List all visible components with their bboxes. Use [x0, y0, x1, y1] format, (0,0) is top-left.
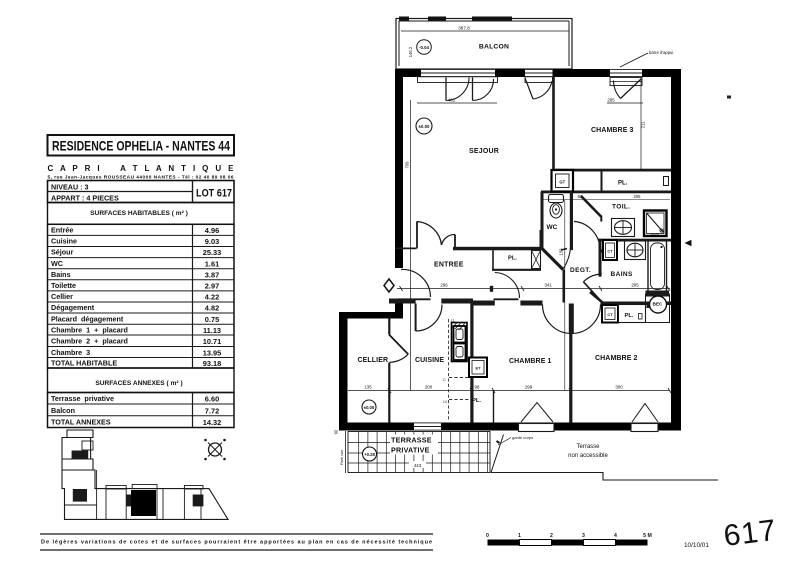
svg-text:Toilette: Toilette — [51, 281, 76, 290]
svg-text:Cuisine: Cuisine — [51, 237, 77, 246]
svg-text:Cellier: Cellier — [51, 292, 73, 301]
svg-text:CHAMBRE 3: CHAMBRE 3 — [591, 127, 634, 134]
svg-text:1.61: 1.61 — [205, 259, 219, 268]
svg-text:0.75: 0.75 — [205, 315, 219, 324]
svg-text:9.03: 9.03 — [205, 237, 219, 246]
svg-text:90: 90 — [334, 429, 339, 434]
svg-text:CUISINE: CUISINE — [415, 357, 444, 364]
svg-text:PL.: PL. — [625, 313, 634, 319]
svg-text:93.18: 93.18 — [203, 359, 222, 368]
svg-text:Chambre 2 + placard: Chambre 2 + placard — [51, 337, 128, 346]
svg-text:709: 709 — [405, 161, 410, 169]
svg-text:3.87: 3.87 — [205, 270, 219, 279]
svg-text:83: 83 — [578, 194, 583, 199]
svg-text:PL.: PL. — [618, 181, 628, 187]
svg-text:135: 135 — [364, 385, 372, 390]
svg-text:LOT 617: LOT 617 — [196, 188, 232, 200]
svg-text:4.82: 4.82 — [205, 304, 219, 313]
svg-text:PL.: PL. — [508, 256, 517, 262]
svg-text:RESIDENCE OPHELIA - NANTES 44: RESIDENCE OPHELIA - NANTES 44 — [52, 139, 230, 154]
svg-text:WC: WC — [51, 259, 63, 268]
svg-text:Terrasse privative: Terrasse privative — [51, 394, 114, 403]
svg-text:5 M: 5 M — [643, 533, 652, 539]
svg-text:ET: ET — [475, 366, 481, 371]
svg-text:3: 3 — [582, 533, 585, 539]
svg-text:BALCON: BALCON — [479, 44, 509, 51]
svg-text:±0.00: ±0.00 — [364, 405, 375, 410]
svg-text:TOTAL ANNEXES: TOTAL ANNEXES — [51, 418, 111, 427]
svg-text:CHAMBRE 2: CHAMBRE 2 — [595, 355, 638, 362]
svg-text:14.32: 14.32 — [203, 418, 222, 427]
svg-text:10/10/01: 10/10/01 — [684, 542, 709, 549]
svg-text:douche: douche — [651, 232, 660, 236]
svg-text:DEGT.: DEGT. — [570, 267, 591, 274]
svg-text:±0.00: ±0.00 — [419, 124, 431, 129]
svg-text:ENTREE: ENTREE — [434, 262, 464, 269]
svg-text:205: 205 — [634, 194, 642, 199]
svg-text:10.71: 10.71 — [203, 337, 222, 346]
svg-text:200: 200 — [425, 385, 433, 390]
svg-text:LV: LV — [443, 400, 448, 404]
svg-text:Bains: Bains — [51, 270, 71, 279]
svg-text:C A P R I A T L A N T I Q U: C A P R I A T L A N T I Q U E — [48, 164, 235, 173]
svg-text:1: 1 — [518, 533, 521, 539]
svg-text:CELLIER: CELLIER — [358, 357, 389, 364]
svg-text:7.72: 7.72 — [205, 406, 219, 415]
svg-text:4.22: 4.22 — [205, 293, 219, 302]
svg-text:CT: CT — [607, 312, 613, 317]
svg-text:617: 617 — [722, 514, 779, 553]
svg-text:Pare vue: Pare vue — [340, 450, 344, 465]
svg-text:300: 300 — [615, 385, 623, 390]
svg-text:341: 341 — [544, 283, 552, 288]
svg-text:CT: CT — [607, 249, 613, 254]
svg-text:BEC: BEC — [653, 302, 663, 307]
svg-text:barre d'appui: barre d'appui — [649, 50, 673, 55]
svg-text:4: 4 — [614, 533, 617, 539]
svg-text:205: 205 — [631, 283, 639, 288]
svg-text:-0.04: -0.04 — [419, 45, 430, 50]
svg-text:211: 211 — [641, 121, 646, 128]
svg-text:PRIVATIVE: PRIVATIVE — [391, 446, 430, 455]
svg-text:BAINS: BAINS — [611, 271, 633, 278]
svg-text:98: 98 — [475, 385, 480, 390]
svg-text:6.60: 6.60 — [205, 395, 219, 404]
svg-text:150: 150 — [559, 248, 564, 256]
svg-text:Terrasse: Terrasse — [576, 444, 600, 450]
svg-text:2: 2 — [550, 533, 553, 539]
svg-text:CHAMBRE 1: CHAMBRE 1 — [509, 358, 552, 365]
svg-text:25.33: 25.33 — [203, 248, 222, 257]
svg-text:461: 461 — [448, 98, 456, 103]
svg-text:Séjour: Séjour — [51, 248, 74, 257]
svg-text:443: 443 — [414, 463, 422, 468]
svg-text:5, rue Jean-Jacques ROUSSEAU 4: 5, rue Jean-Jacques ROUSSEAU 44000 NANTE… — [48, 175, 234, 181]
svg-text:+0.28: +0.28 — [364, 452, 375, 457]
svg-text:146.2: 146.2 — [408, 46, 413, 57]
svg-text:TOTAL HABITABLE: TOTAL HABITABLE — [51, 359, 117, 368]
svg-text:Dégagement: Dégagement — [51, 303, 95, 312]
svg-text:SEJOUR: SEJOUR — [469, 148, 499, 155]
svg-text:SURFACES HABITABLES ( m² ): SURFACES HABITABLES ( m² ) — [90, 210, 188, 217]
svg-text:Entrée: Entrée — [51, 226, 73, 235]
svg-text:TOIL.: TOIL. — [612, 204, 631, 211]
svg-text:non accessible: non accessible — [568, 453, 608, 459]
svg-text:367.8: 367.8 — [458, 26, 470, 31]
svg-text:PL.: PL. — [472, 398, 481, 404]
svg-text:4.96: 4.96 — [205, 226, 219, 235]
svg-text:NIVEAU : 3: NIVEAU : 3 — [51, 182, 89, 191]
svg-text:Balcon: Balcon — [51, 406, 75, 415]
svg-text:Placard dégagement: Placard dégagement — [51, 314, 124, 323]
svg-text:296: 296 — [440, 283, 448, 288]
svg-text:299: 299 — [525, 385, 533, 390]
svg-text:2.97: 2.97 — [205, 282, 219, 291]
svg-text:APPART : 4 PIECES: APPART : 4 PIECES — [51, 193, 119, 202]
svg-text:C: C — [443, 378, 446, 382]
svg-text:0: 0 — [486, 533, 489, 539]
svg-text:garde corps: garde corps — [512, 435, 533, 440]
svg-text:TERRASSE: TERRASSE — [391, 436, 432, 445]
svg-text:Chambre 1 + placard: Chambre 1 + placard — [51, 325, 128, 334]
svg-text:GT: GT — [559, 180, 565, 185]
svg-text:13.95: 13.95 — [203, 348, 222, 357]
svg-text:11.13: 11.13 — [203, 326, 221, 335]
svg-text:SURFACES ANNEXES ( m² ): SURFACES ANNEXES ( m² ) — [95, 380, 182, 387]
svg-text:De légères variations de cotes: De légères variations de cotes et de sur… — [41, 540, 432, 546]
svg-text:Chambre 3: Chambre 3 — [51, 348, 90, 357]
svg-text:285: 285 — [607, 98, 615, 103]
svg-text:WC: WC — [547, 224, 558, 231]
